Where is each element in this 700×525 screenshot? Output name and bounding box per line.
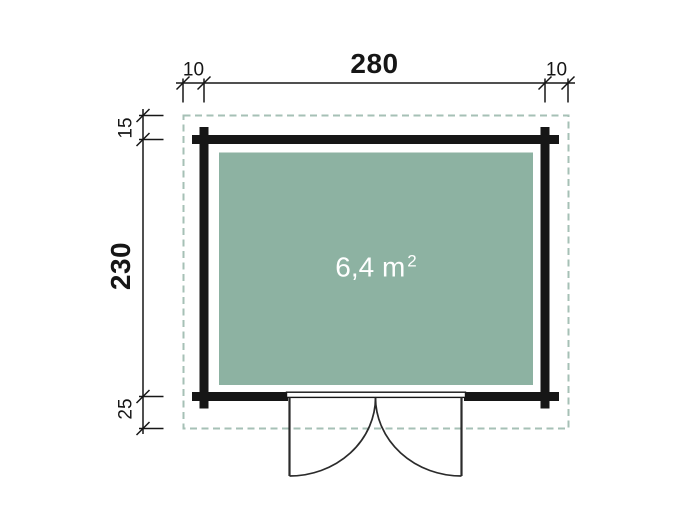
floor-area-value: 6,4 m (335, 252, 405, 283)
dimension-label-left-bottom-overhang: 25 (117, 398, 136, 419)
dimension-label-width: 280 (350, 50, 398, 78)
dimension-ticks-top (177, 77, 575, 103)
wall-bottom-left-segment (192, 392, 288, 401)
wall-top (192, 135, 559, 144)
floor-area-exponent: 2 (407, 252, 416, 271)
door-threshold (287, 392, 466, 397)
door-swing-arc-right (376, 398, 462, 477)
wall-right (541, 127, 550, 409)
dimension-label-top-right-overhang: 10 (546, 61, 567, 80)
dimension-label-top-left-overhang: 10 (183, 61, 204, 80)
floorplan-canvas: 10 280 10 15 230 25 6,4 m2 (0, 0, 700, 525)
wall-bottom-right-segment (464, 392, 559, 401)
dimension-label-left-top-overhang: 15 (117, 117, 136, 138)
dimension-label-depth: 230 (107, 242, 135, 290)
door-swing-arc-left (290, 398, 376, 477)
floor-area-label: 6,4 m2 (335, 253, 417, 282)
dimension-ticks-left (137, 109, 164, 435)
wall-left (200, 127, 209, 409)
